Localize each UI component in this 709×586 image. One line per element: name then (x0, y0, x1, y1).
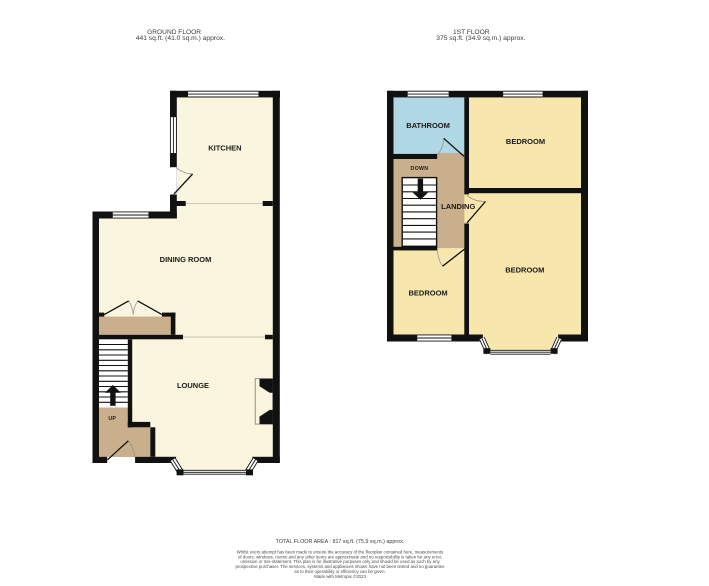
svg-text:LANDING: LANDING (441, 202, 475, 211)
svg-text:Made with Metropix ©2023: Made with Metropix ©2023 (314, 574, 366, 579)
svg-text:BEDROOM: BEDROOM (506, 137, 545, 146)
svg-text:LOUNGE: LOUNGE (177, 381, 209, 390)
svg-text:BATHROOM: BATHROOM (406, 121, 450, 130)
svg-text:441 sq.ft. (41.0 sq.m.) approx: 441 sq.ft. (41.0 sq.m.) approx. (136, 35, 225, 42)
svg-text:375 sq.ft. (34.9 sq.m.) approx: 375 sq.ft. (34.9 sq.m.) approx. (436, 35, 525, 42)
svg-text:TOTAL FLOOR AREA : 817 sq.ft.: TOTAL FLOOR AREA : 817 sq.ft. (75.9 sq.m… (276, 539, 405, 545)
svg-text:KITCHEN: KITCHEN (208, 143, 241, 152)
svg-text:BEDROOM: BEDROOM (505, 266, 544, 275)
svg-text:UP: UP (108, 416, 116, 422)
svg-text:DINING ROOM: DINING ROOM (160, 255, 212, 264)
svg-text:DOWN: DOWN (410, 166, 428, 172)
svg-text:BEDROOM: BEDROOM (409, 288, 448, 297)
